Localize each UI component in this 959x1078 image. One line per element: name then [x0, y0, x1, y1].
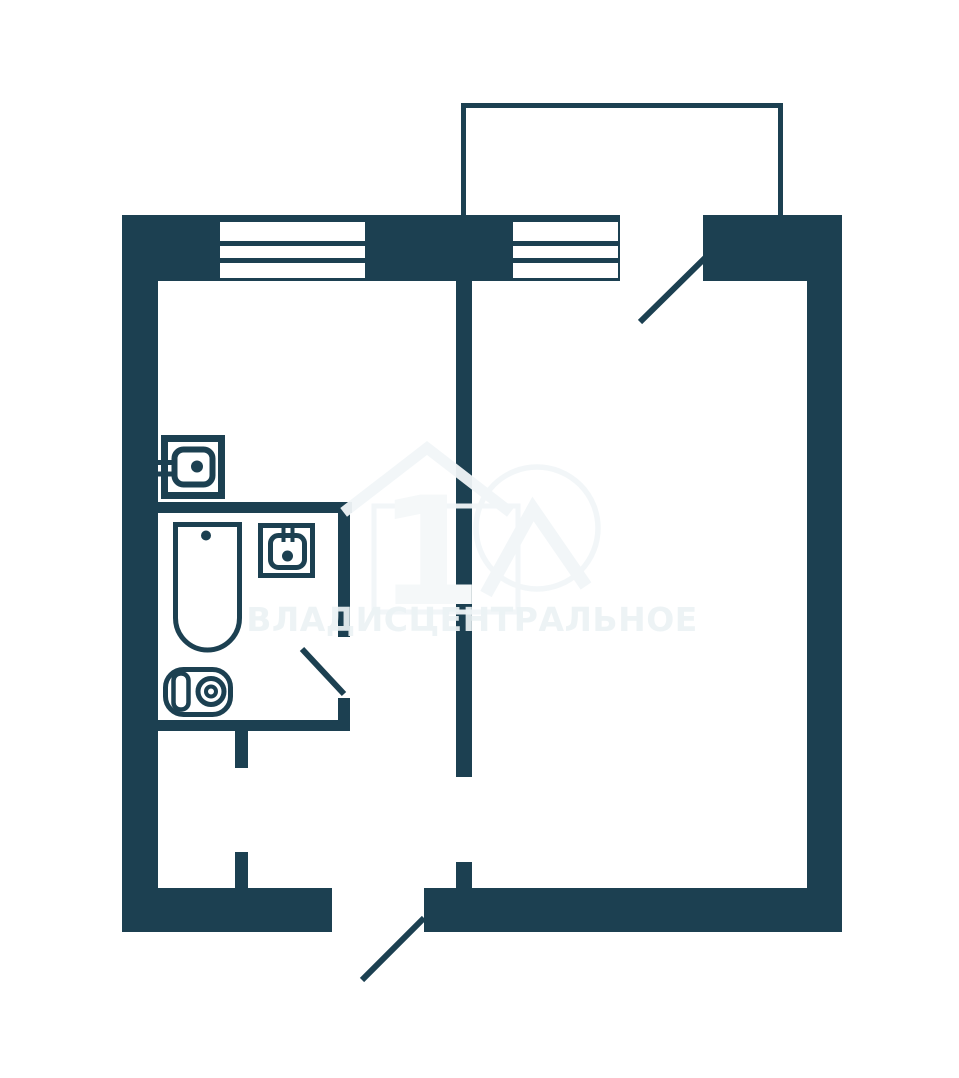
- bottom-wall-right: [424, 888, 842, 932]
- window-mullion: [513, 258, 618, 263]
- bathroom-top-wall: [158, 502, 352, 513]
- window-icon: [513, 222, 618, 278]
- window-glass: [220, 222, 365, 278]
- kitchen-sink-icon: [157, 439, 222, 496]
- window-mullion: [220, 241, 365, 246]
- bathtub-icon: [176, 525, 240, 651]
- door-swing-icon: [362, 918, 424, 980]
- bottom-wall-left: [122, 888, 332, 932]
- window-mullion: [513, 241, 618, 246]
- left-wall: [122, 215, 158, 932]
- floor-plan-canvas: 1 ВЛАДИСЦЕНТРАЛЬНОЕ: [0, 0, 959, 1078]
- window-glass: [513, 222, 618, 278]
- window-mullion: [220, 258, 365, 263]
- door-swing-icon: [302, 649, 344, 694]
- window-icon: [220, 222, 365, 278]
- watermark-brand-text: ВЛАДИСЦЕНТРАЛЬНОЕ: [246, 600, 698, 639]
- washbasin-icon: [261, 526, 313, 576]
- right-wall: [807, 215, 842, 932]
- bathroom-bottom-wall: [158, 720, 344, 731]
- center-partition-stub: [456, 862, 472, 890]
- closet-partition-stub-bottom: [235, 852, 248, 888]
- closet-partition-stub-top: [235, 731, 248, 768]
- toilet-icon: [166, 670, 231, 715]
- floor-plan-drawing: 1 ВЛАДИСЦЕНТРАЛЬНОЕ: [0, 0, 959, 1078]
- balcony-outline-icon: [464, 106, 781, 217]
